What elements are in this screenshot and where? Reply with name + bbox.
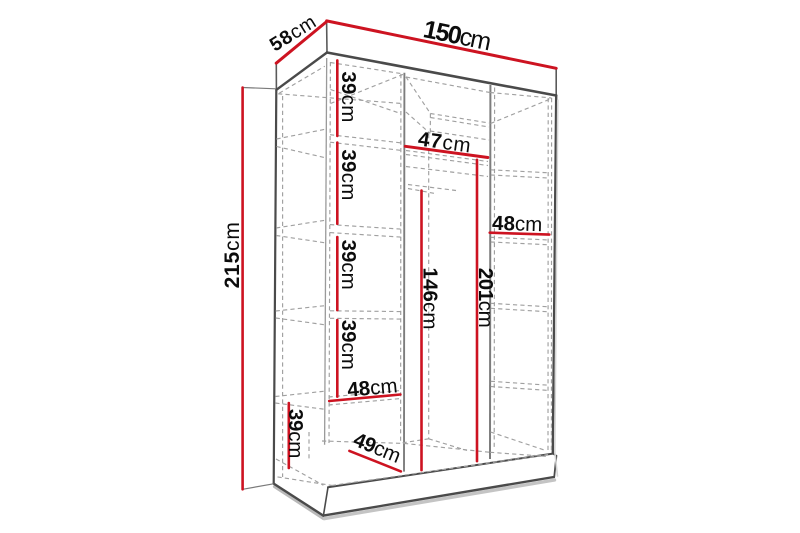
- svg-text:39cm: 39cm: [337, 71, 360, 122]
- svg-text:48cm: 48cm: [346, 374, 398, 401]
- svg-text:39cm: 39cm: [337, 240, 360, 290]
- svg-text:39cm: 39cm: [284, 409, 307, 458]
- svg-text:201cm: 201cm: [474, 268, 497, 328]
- svg-text:39cm: 39cm: [337, 149, 360, 200]
- svg-text:215cm: 215cm: [221, 221, 244, 288]
- svg-text:150cm: 150cm: [421, 15, 493, 56]
- svg-text:39cm: 39cm: [337, 320, 360, 370]
- svg-text:146cm: 146cm: [419, 267, 442, 329]
- svg-text:48cm: 48cm: [492, 212, 543, 237]
- svg-text:47cm: 47cm: [417, 128, 473, 158]
